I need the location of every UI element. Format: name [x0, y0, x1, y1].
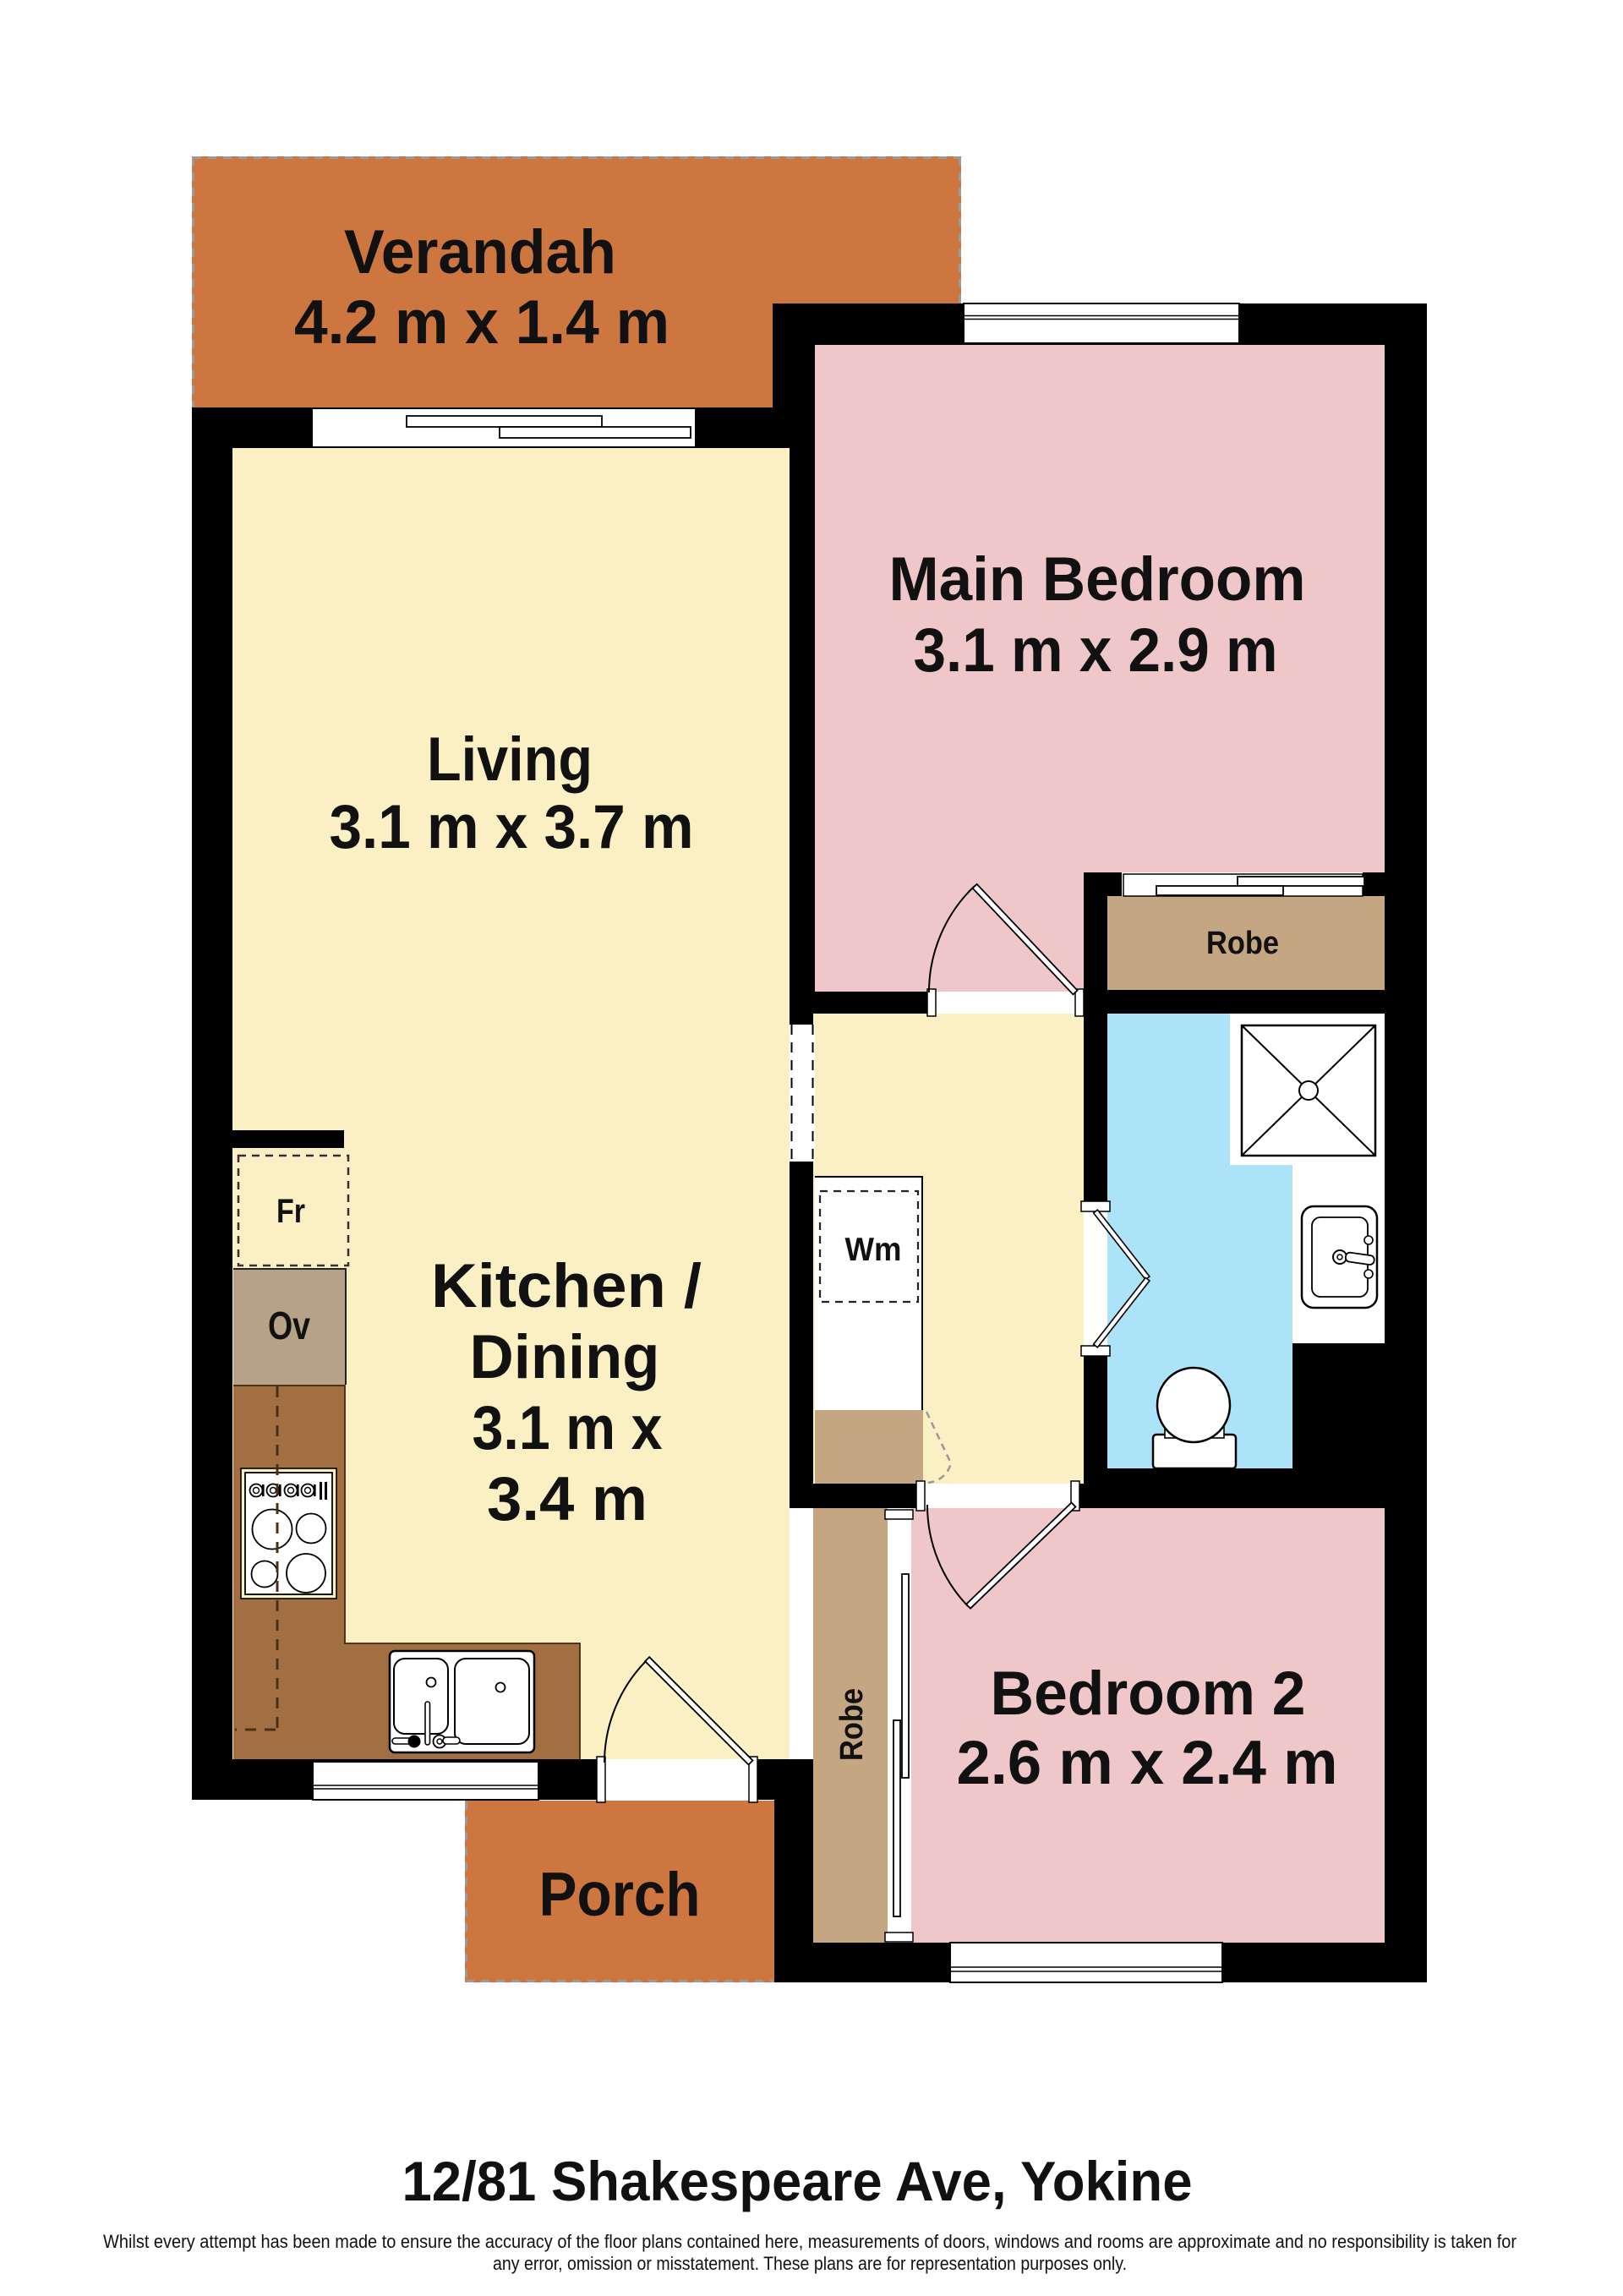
- svg-text:12/81 Shakespeare Ave, Yokine: 12/81 Shakespeare Ave, Yokine: [402, 2150, 1193, 2212]
- svg-text:Bedroom 2: Bedroom 2: [991, 1659, 1306, 1728]
- svg-text:3.1 m x 3.7 m: 3.1 m x 3.7 m: [330, 793, 694, 861]
- svg-text:Porch: Porch: [539, 1861, 701, 1929]
- svg-text:Living: Living: [427, 725, 593, 794]
- svg-text:3.1 m x: 3.1 m x: [473, 1394, 663, 1462]
- svg-text:Wm: Wm: [845, 1232, 902, 1268]
- svg-text:2.6 m x 2.4 m: 2.6 m x 2.4 m: [957, 1729, 1338, 1797]
- svg-text:Robe: Robe: [1206, 926, 1279, 961]
- svg-text:any error, omission or misstat: any error, omission or misstatement. The…: [493, 2253, 1127, 2274]
- svg-text:Robe: Robe: [834, 1688, 870, 1761]
- svg-text:Main Bedroom: Main Bedroom: [889, 545, 1306, 614]
- svg-text:Kitchen /: Kitchen /: [431, 1252, 702, 1320]
- svg-text:Verandah: Verandah: [344, 218, 616, 287]
- svg-text:Whilst every attempt has been: Whilst every attempt has been made to en…: [103, 2231, 1516, 2252]
- svg-text:4.2 m x 1.4 m: 4.2 m x 1.4 m: [294, 288, 669, 357]
- svg-text:3.1 m x 2.9 m: 3.1 m x 2.9 m: [914, 616, 1278, 685]
- svg-text:Fr: Fr: [276, 1193, 305, 1230]
- svg-text:Dining: Dining: [470, 1323, 660, 1391]
- svg-text:3.4 m: 3.4 m: [487, 1465, 648, 1533]
- svg-text:Ov: Ov: [268, 1304, 310, 1348]
